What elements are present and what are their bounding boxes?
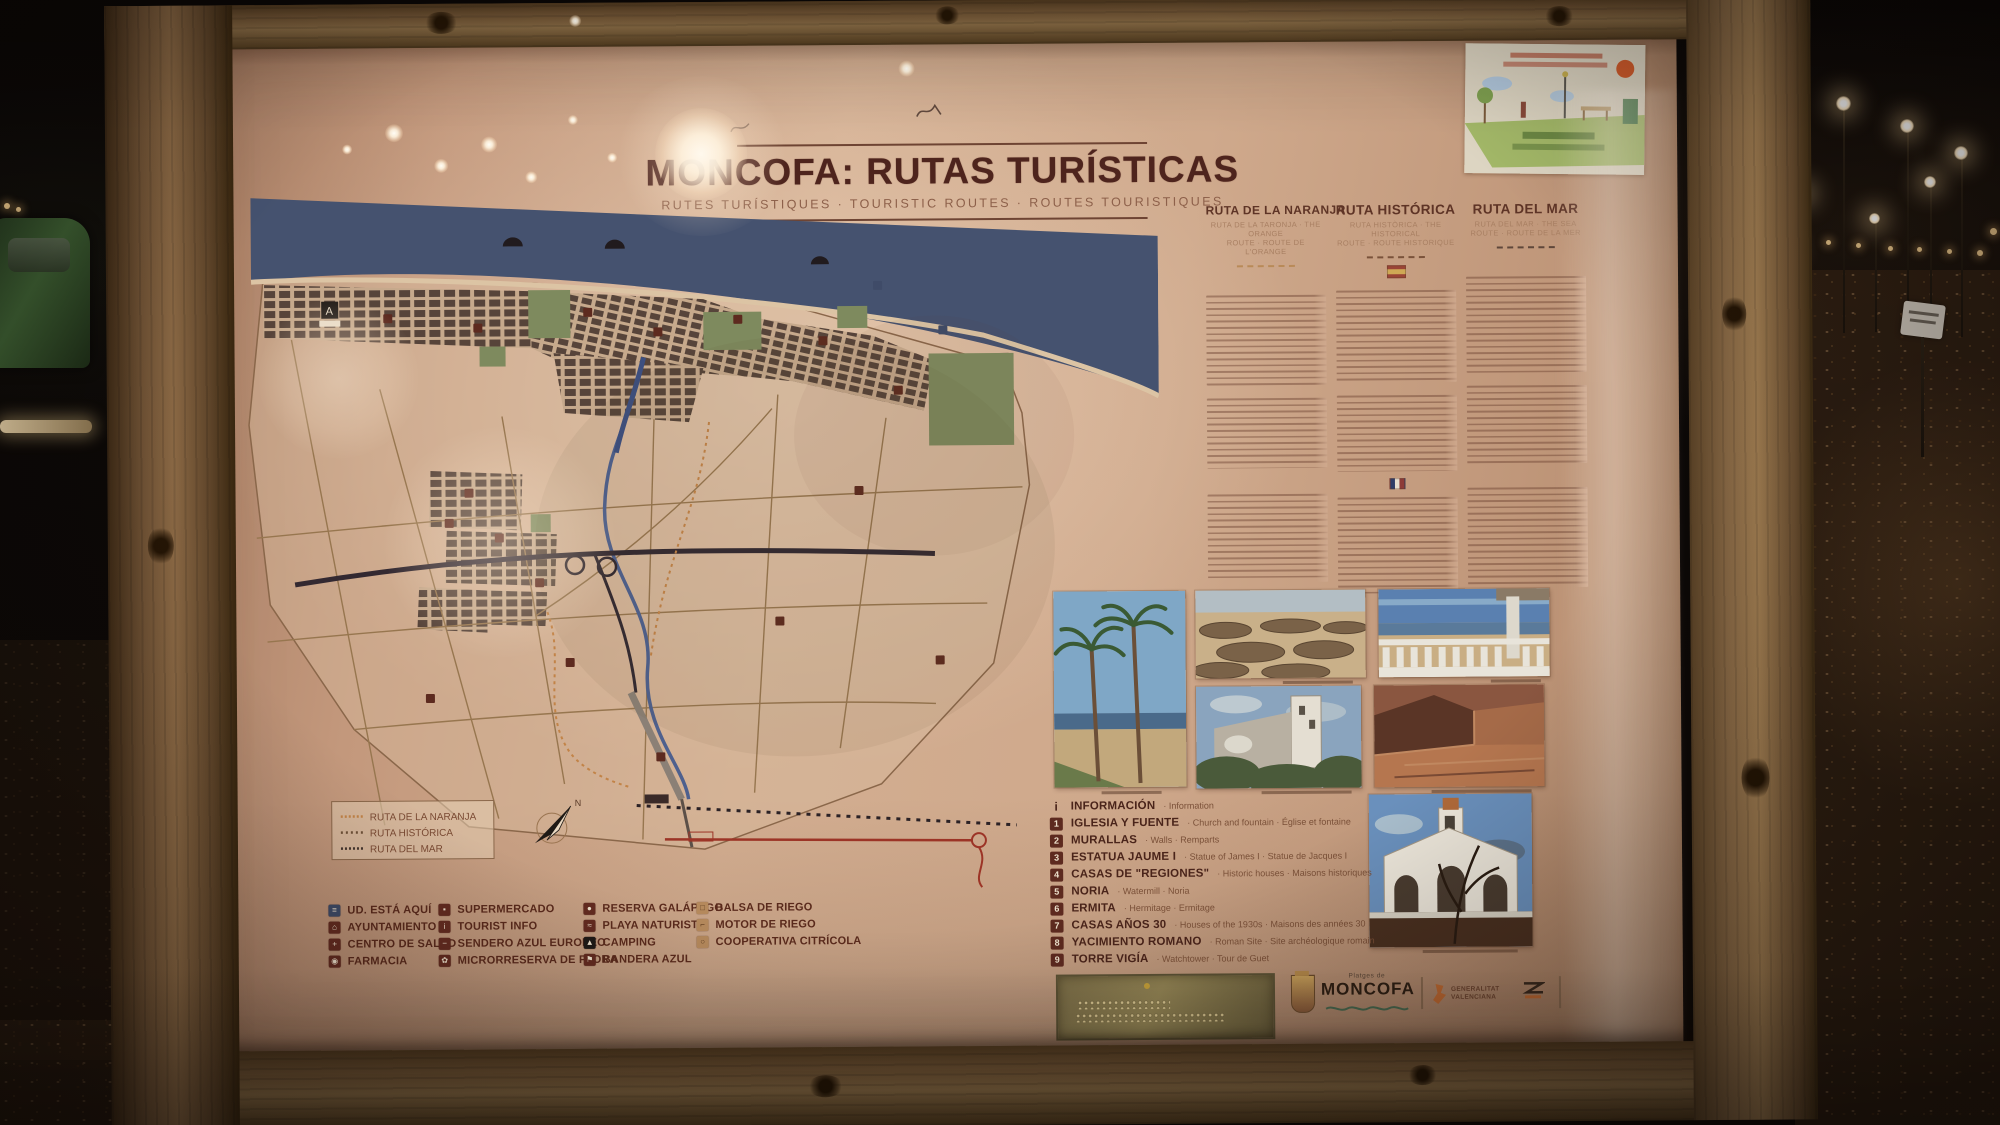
lens-glare-halo — [617, 75, 788, 236]
paragraph-en — [1337, 395, 1458, 472]
braille-text-row — [1078, 1000, 1170, 1010]
crest-crown — [1295, 971, 1309, 976]
logo-divider — [1421, 977, 1423, 1009]
paragraph-es — [1206, 295, 1327, 386]
gva-logo-icon — [1433, 984, 1446, 1004]
you-are-here-icon: ≡ — [328, 904, 340, 916]
map-legend-label: RUTA DEL MAR — [370, 844, 443, 856]
sign-panel: MONCOFA: RUTAS TURÍSTICAS RUTES TURÍSTIQ… — [196, 29, 1683, 1069]
irrigation-pump-icon: ⌐ — [696, 919, 708, 931]
logo-divider — [1559, 976, 1561, 1008]
poi-number-icon: 3 — [1050, 851, 1063, 864]
gva-logo: GENERALITAT VALENCIANA — [1433, 978, 1513, 1009]
pharmacy-icon: ◉ — [329, 955, 341, 967]
tourist-info-icon: i — [438, 920, 450, 932]
naturist-beach-icon: ≈ — [583, 919, 595, 931]
photo-palm-beach — [1053, 591, 1186, 788]
poi-number-icon: 1 — [1050, 817, 1063, 830]
bokeh-light — [607, 153, 617, 163]
braille-plaque — [1056, 973, 1275, 1041]
supermarket-icon: ▪ — [438, 903, 450, 915]
poi-list: iINFORMACIÓN· Information 1IGLESIA Y FUE… — [1050, 796, 1381, 968]
citrus-cooperative-icon: ○ — [697, 936, 709, 948]
france-flag-icon — [1389, 478, 1405, 489]
compass-n-label: N — [575, 798, 582, 808]
map-legend-label: RUTA DE LA NARANJA — [370, 812, 477, 824]
title-rule-top — [737, 142, 1147, 147]
bokeh-light — [481, 137, 497, 153]
graffiti-scribble — [915, 100, 943, 120]
bokeh-light — [898, 61, 914, 77]
paragraph-es — [1336, 290, 1457, 383]
route-subtitle: RUTA DE LA TARONJA · THE ORANGE — [1206, 220, 1326, 239]
blue-flag-icon: ⚑ — [584, 953, 596, 965]
photo-watermill — [1196, 685, 1362, 788]
route-title: RUTA DE LA NARANJA — [1205, 203, 1325, 218]
frame-bottom-rail — [207, 1041, 1764, 1125]
photo-roman-trenches — [1195, 589, 1366, 678]
photo-caption — [1491, 679, 1541, 682]
panel-reflection-streak — [1557, 89, 1682, 1050]
frame-right-post — [1686, 0, 1818, 1120]
sign-board: MONCOFA: RUTAS TURÍSTICAS RUTES TURÍSTIQ… — [0, 0, 2000, 1125]
route-subtitle: RUTA HISTÒRICA · THE HISTORICAL — [1336, 220, 1456, 239]
info-icon: i — [1050, 800, 1063, 813]
bokeh-light — [342, 145, 352, 155]
red-interchange-ramp — [979, 847, 983, 887]
night-photo-scene: MONCOFA: RUTAS TURÍSTICAS RUTES TURÍSTIQ… — [0, 0, 2000, 1125]
moncofa-logo-wave — [1324, 1004, 1410, 1013]
moncofa-logo: Platges de MONCOFA — [1321, 972, 1413, 1015]
paragraph-fr — [1338, 497, 1459, 594]
map-symbol-legend: ≡UD. ESTÁ AQUÍ ⌂AYUNTAMIENTO +CENTRO DE … — [328, 896, 1028, 973]
turtle-reserve-icon: ● — [583, 902, 595, 914]
bokeh-light — [569, 15, 581, 27]
photo-ermita-church — [1369, 793, 1533, 947]
route-dash-line — [1367, 256, 1425, 258]
photo-roman-stones — [1374, 684, 1545, 787]
photo-caption — [1102, 791, 1162, 794]
photo-beach-balustrade — [1378, 588, 1550, 677]
moncofa-logo-text: MONCOFA — [1321, 979, 1413, 1000]
route-dash-line — [1497, 246, 1555, 248]
partner-logo-icon — [1521, 980, 1545, 1000]
flora-reserve-icon: ✿ — [439, 954, 451, 966]
route-title: RUTA HISTÓRICA — [1335, 202, 1455, 218]
paragraph-en — [1207, 398, 1327, 469]
frame-left-post — [104, 5, 240, 1125]
camping-icon: ▲ — [584, 936, 596, 948]
plaque-gold-dot — [1144, 983, 1150, 989]
soft-glare — [258, 298, 419, 459]
route-label-box — [645, 794, 669, 803]
health-centre-icon: + — [329, 938, 341, 950]
poi-number-icon: 9 — [1051, 953, 1064, 966]
spain-flag-icon — [1386, 265, 1405, 278]
bokeh-light — [568, 115, 578, 125]
route-column-naranja: RUTA DE LA NARANJA RUTA DE LA TARONJA · … — [1205, 203, 1328, 583]
tourist-map: A RUTA DE LA NARANJA RUTA HISTÓRICA RUTA… — [232, 184, 1162, 910]
bokeh-light — [525, 171, 537, 183]
poi-number-icon: 5 — [1050, 885, 1063, 898]
soft-glare — [384, 427, 616, 659]
bokeh-light — [385, 124, 403, 142]
irrigation-pond-icon: □ — [696, 902, 708, 914]
route-subtitle: ROUTE · ROUTE DE L'ORANGE — [1206, 238, 1326, 257]
route-dash-line — [1237, 265, 1295, 267]
route-column-historica: RUTA HISTÓRICA RUTA HISTÒRICA · THE HIST… — [1335, 202, 1458, 594]
poi-number-icon: 8 — [1051, 936, 1064, 949]
town-hall-icon: ⌂ — [328, 921, 340, 933]
route-descriptions: RUTA DE LA NARANJA RUTA DE LA TARONJA · … — [1205, 201, 1588, 634]
poi-number-icon: 6 — [1050, 902, 1063, 915]
photo-caption — [1423, 949, 1518, 953]
gva-logo-line2: VALENCIANA — [1451, 994, 1500, 1002]
photo-caption — [1262, 791, 1352, 795]
poi-number-icon: 7 — [1050, 919, 1063, 932]
blue-trail-icon: − — [439, 937, 451, 949]
poi-number-icon: 4 — [1050, 868, 1063, 881]
red-interchange — [972, 833, 986, 847]
crest-icon — [1291, 975, 1315, 1013]
photo-caption — [1283, 681, 1353, 684]
bokeh-light — [434, 159, 448, 173]
map-route-legend: RUTA DE LA NARANJA RUTA HISTÓRICA RUTA D… — [332, 801, 494, 860]
map-legend-label: RUTA HISTÓRICA — [370, 826, 454, 840]
route-subtitle: ROUTE · ROUTE HISTORIQUE — [1336, 238, 1456, 248]
paragraph-fr — [1208, 494, 1329, 583]
braille-text-row — [1076, 1012, 1226, 1022]
poi-number-icon: 2 — [1050, 834, 1063, 847]
